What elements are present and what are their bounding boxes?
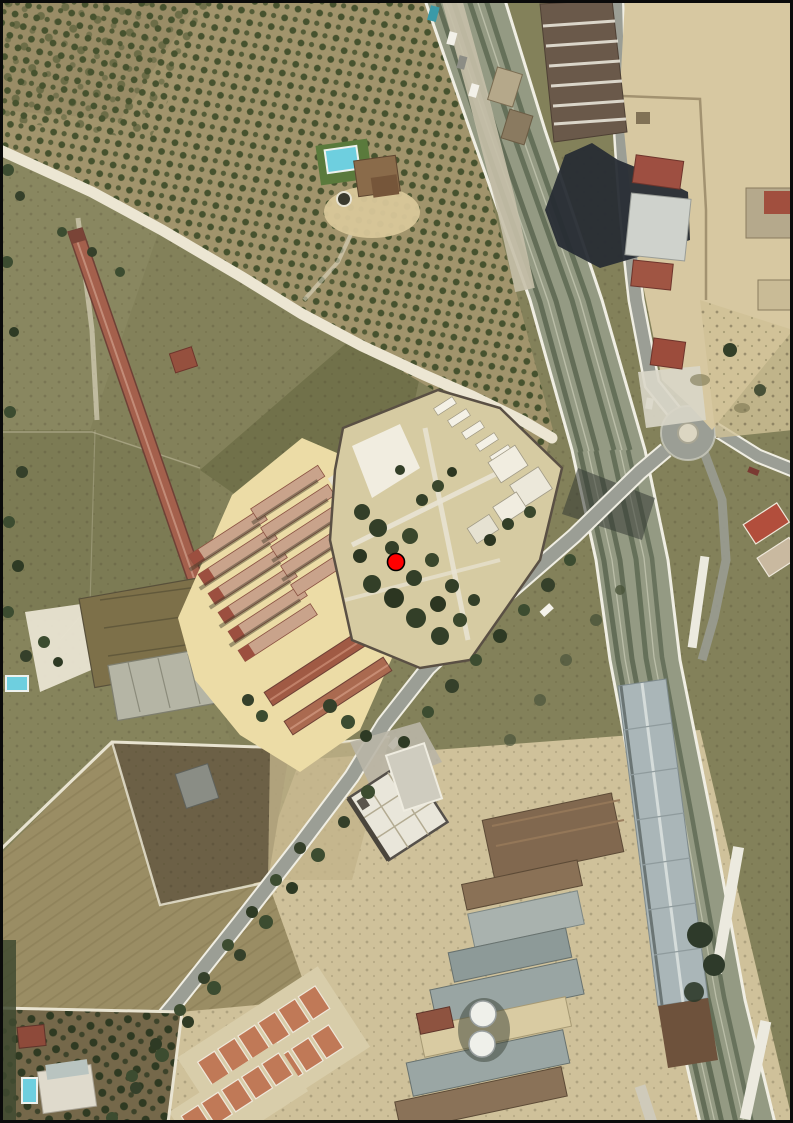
aerial-map-viewport [0, 0, 793, 1123]
garden-pool [22, 1078, 37, 1103]
storage-spheres [458, 998, 510, 1062]
location-marker[interactable] [388, 554, 405, 571]
round-pond [337, 192, 351, 206]
red-shed [650, 338, 685, 369]
swimming-pool [325, 146, 360, 173]
small-pool [6, 676, 28, 691]
striped-warehouse [540, 0, 627, 142]
garden-shed [17, 1025, 46, 1049]
